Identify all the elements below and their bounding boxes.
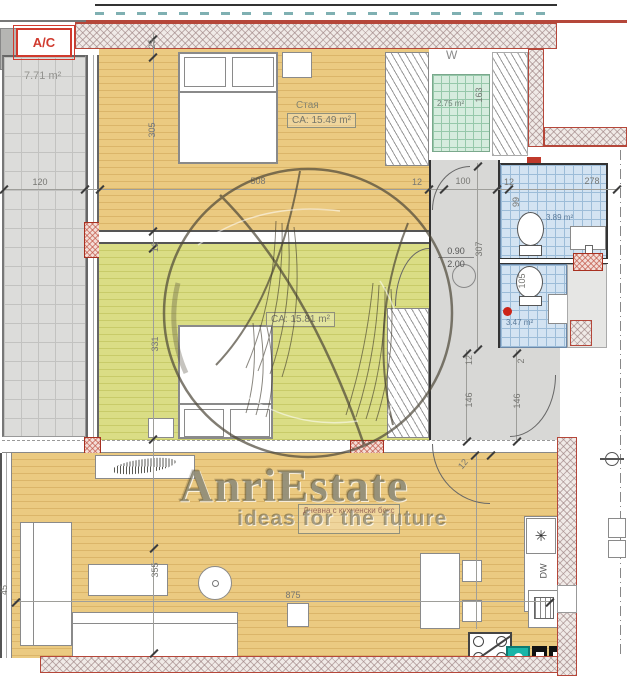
closet-area-label: 2.75 m² [437, 99, 464, 108]
bedroom2-wardrobe [387, 308, 429, 438]
dimension-label: 100 [455, 176, 470, 186]
bedroom1-bed [178, 52, 278, 164]
dimension-label: 12 [412, 177, 422, 187]
red-dot-marker [503, 307, 512, 316]
dimension-label: 278 [584, 176, 599, 186]
ac-unit-badge: A/C [16, 28, 72, 57]
bedroom1-wardrobe [385, 52, 429, 166]
dimension-label: 146 [464, 392, 474, 407]
neighbor-furniture [608, 540, 626, 558]
dimension-label: 305 [147, 122, 157, 137]
stove-burner [473, 636, 484, 647]
dimension-label: 163 [474, 87, 484, 102]
sofa-left [20, 522, 72, 646]
wall-pier-living-left [84, 437, 101, 454]
terrace [2, 55, 86, 437]
bathroom1-area-label: 3.89 m² [546, 213, 573, 222]
wall-pier-right [573, 253, 603, 271]
dimension-label: 12 [504, 177, 514, 187]
door-size-label: 0.90 2.00 [438, 245, 474, 270]
closet-w-label: W [446, 48, 457, 62]
bathroom2-area-label: 3.47 m² [506, 318, 533, 327]
window-band-living-left [0, 453, 12, 658]
dishwasher-label: DW [539, 564, 549, 579]
fridge-symbol: ✳ [535, 527, 548, 545]
dimension-label: 307 [474, 241, 484, 256]
round-table [198, 566, 232, 600]
fridge: ✳ [526, 518, 556, 554]
toilet-tank [519, 245, 542, 256]
dimension-label: 875 [285, 590, 300, 600]
pillow [230, 409, 270, 437]
toilet [517, 212, 544, 246]
bathroom2-sink [548, 294, 568, 324]
right-upper-wall [528, 49, 544, 147]
pillow [184, 409, 224, 437]
dimension-label: 508 [250, 176, 265, 186]
dimension-label: 120 [32, 177, 47, 187]
pillow [184, 57, 226, 87]
terrace-area-label: 7.71 m² [24, 70, 61, 82]
right-wall-door-gap [557, 585, 577, 613]
right-wing-wall [544, 127, 627, 147]
dimension-label: 45 [0, 585, 9, 595]
door-height: 2.00 [438, 258, 474, 270]
bedroom1-nightstand [282, 52, 312, 78]
bottom-outer-wall [40, 656, 560, 673]
dimension-label: 99 [511, 197, 521, 207]
dimension-label: 331 [150, 336, 160, 351]
dimension-label: 12 [464, 355, 474, 365]
bathroom1-sink [570, 226, 606, 250]
section-marker [605, 452, 619, 466]
bedroom2-nightstand [148, 418, 174, 438]
terrace-top-line [0, 20, 86, 22]
dim-line [14, 601, 553, 602]
toilet-tank [519, 296, 542, 306]
living-name-label: Дневна с кухненски бокс [298, 504, 400, 534]
bedroom-divider-wall [99, 230, 429, 244]
section-marker-line [600, 458, 624, 460]
neighbor-furniture [608, 518, 626, 538]
dim-line [2, 189, 618, 190]
bedroom1-name-label: Стая [296, 100, 319, 111]
round-table-center [212, 580, 219, 587]
right-outer-wall [557, 437, 577, 676]
dashdot-property-line [620, 150, 621, 655]
floor-plan: A/C 7.71 m² Стая CA: 15.49 m² CA: 15.81 … [0, 0, 627, 678]
dimension-label: 355 [150, 562, 160, 577]
dimension-label: 105 [517, 273, 527, 288]
pillow [232, 57, 274, 87]
blanket-line [180, 91, 276, 93]
dimension-label: 25 [147, 39, 157, 49]
kitchen-sink [528, 590, 560, 628]
bath-niche-pier [570, 320, 592, 346]
dimension-label: 146 [512, 393, 522, 408]
closet-tiles [432, 74, 490, 152]
dining-chair [462, 600, 482, 622]
bedroom2-area-label: CA: 15.81 m² [266, 312, 335, 327]
bedroom2-bed [178, 325, 273, 439]
dimension-label: 12 [150, 242, 160, 252]
bedroom1-area-label: CA: 15.49 m² [287, 113, 356, 128]
closet-wardrobe [492, 52, 528, 156]
wall-pier-living-mid [350, 440, 384, 454]
dimension-label: 2 [516, 358, 526, 363]
door-width: 0.90 [438, 245, 474, 258]
dining-chair [462, 560, 482, 582]
dining-chair [287, 603, 309, 627]
blanket-line [180, 403, 271, 405]
dining-table [420, 553, 460, 629]
